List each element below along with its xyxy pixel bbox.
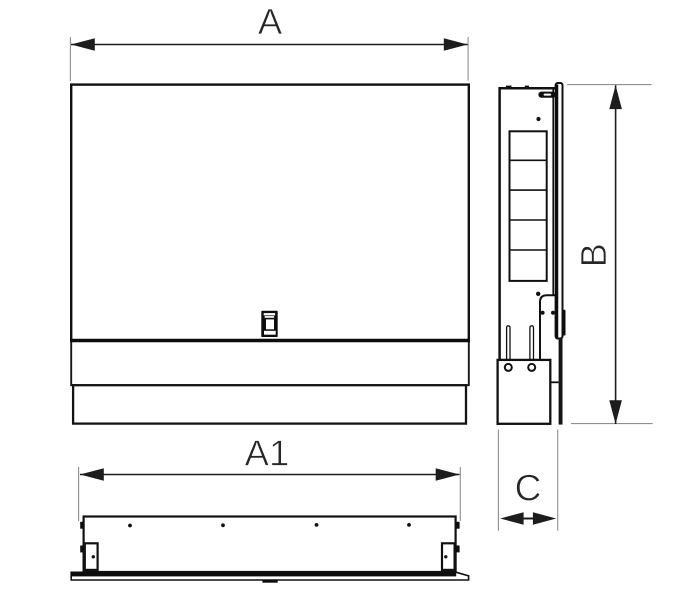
svg-text:C: C: [515, 468, 542, 509]
svg-text:B: B: [573, 243, 614, 267]
svg-text:A: A: [258, 1, 283, 42]
svg-text:A1: A1: [245, 432, 290, 473]
